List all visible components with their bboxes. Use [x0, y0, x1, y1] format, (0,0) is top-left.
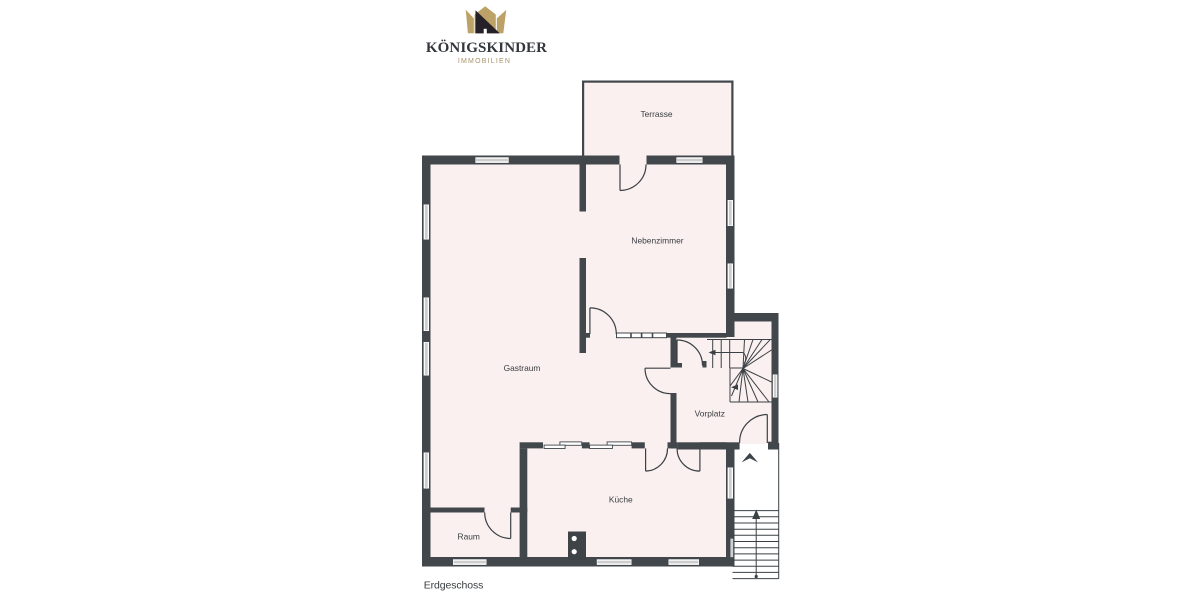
svg-text:Erdgeschoss: Erdgeschoss	[424, 580, 484, 592]
svg-text:Raum: Raum	[458, 532, 480, 542]
svg-text:Gastraum: Gastraum	[504, 363, 541, 373]
svg-text:Küche: Küche	[609, 495, 633, 505]
svg-text:Terrasse: Terrasse	[640, 109, 672, 119]
svg-text:Vorplatz: Vorplatz	[695, 408, 725, 418]
svg-text:Nebenzimmer: Nebenzimmer	[631, 235, 683, 245]
svg-text:KÖNIGSKINDER: KÖNIGSKINDER	[426, 39, 547, 56]
svg-text:IMMOBILIEN: IMMOBILIEN	[458, 58, 511, 65]
